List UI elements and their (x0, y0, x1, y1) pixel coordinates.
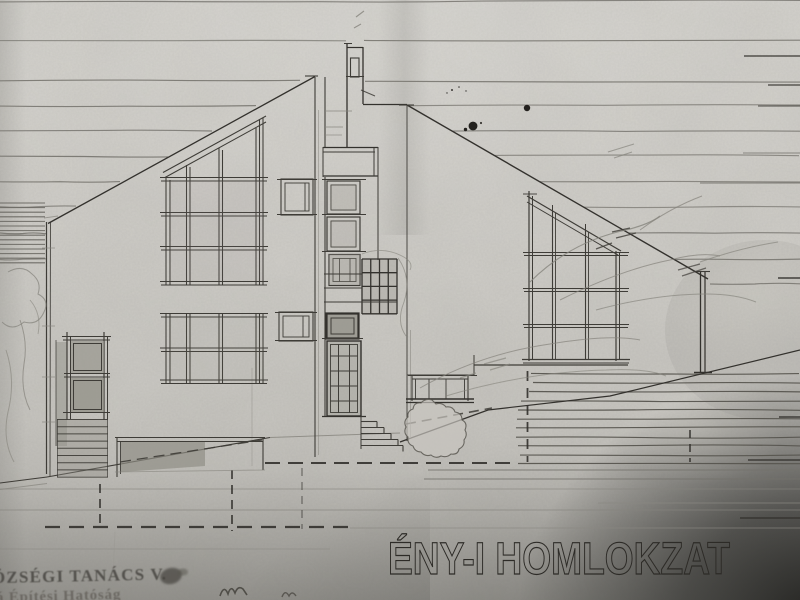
svg-text:ÖZSÉGI TANÁCS V.: ÖZSÉGI TANÁCS V. (0, 564, 167, 587)
svg-text:ÉNY-I HOMLOKZAT: ÉNY-I HOMLOKZAT (388, 533, 730, 584)
